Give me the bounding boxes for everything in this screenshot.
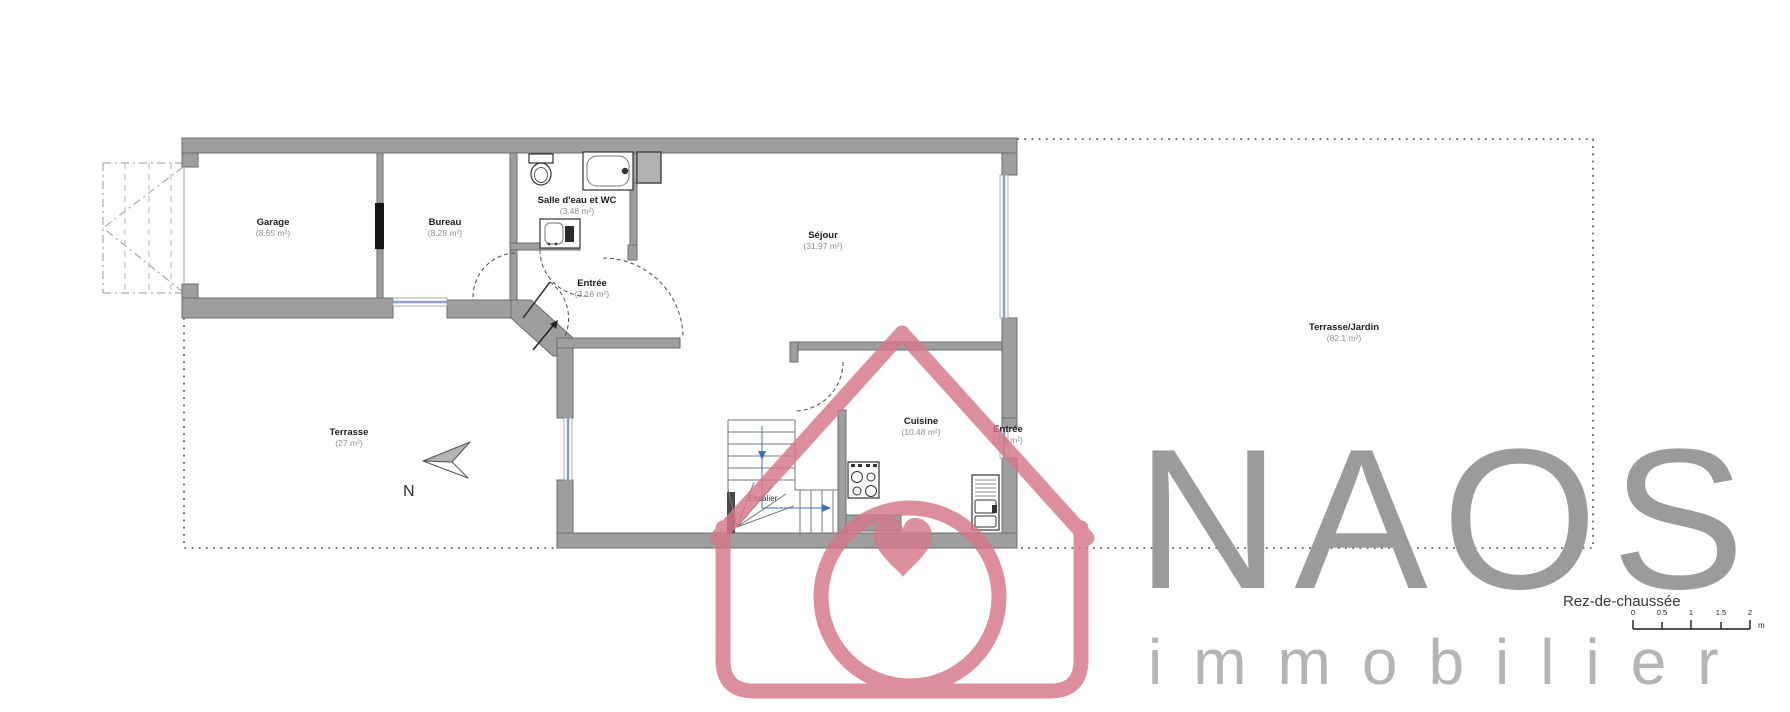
scale-tick-2: 2 bbox=[1748, 608, 1752, 617]
bathtub-icon bbox=[583, 152, 633, 190]
room-label-bureau: Bureau (8.28 m²) bbox=[428, 217, 462, 239]
brand-watermark-text: NAOS bbox=[1136, 420, 1759, 620]
room-label-sejour: Séjour (31.97 m²) bbox=[803, 230, 842, 252]
sink-icon bbox=[972, 475, 999, 530]
north-arrow-icon bbox=[423, 442, 470, 478]
north-label: N bbox=[403, 483, 415, 501]
kitchen-door-arc bbox=[794, 362, 843, 411]
room-label-escalier: Escalier bbox=[749, 493, 777, 504]
stairs bbox=[728, 420, 838, 533]
driveway-markings bbox=[103, 163, 183, 293]
stove-icon bbox=[848, 462, 879, 498]
room-label-terrasse: Terrasse (27 m²) bbox=[330, 427, 369, 449]
scale-unit: m bbox=[1758, 621, 1765, 630]
room-label-salle-eau-wc: Salle d'eau et WC (3.48 m²) bbox=[538, 195, 617, 217]
scale-tick-15: 1.5 bbox=[1716, 608, 1726, 617]
sejour-door-arc bbox=[603, 258, 683, 338]
washbasin-icon bbox=[540, 219, 580, 248]
room-label-entree-rear: Entrée (3.4 m²) bbox=[993, 424, 1023, 446]
toilet-icon bbox=[529, 154, 553, 185]
room-label-entree-hall: Entrée (3.16 m²) bbox=[575, 278, 609, 300]
utility-shaft-block bbox=[637, 152, 661, 183]
room-label-cuisine: Cuisine (10.48 m²) bbox=[901, 416, 940, 438]
room-label-terrasse-jardin: Terrasse/Jardin (82.1 m²) bbox=[1309, 322, 1379, 344]
brand-watermark-subtitle: immobilier bbox=[1148, 630, 1750, 694]
floor-plan-page: Garage (8.65 m²) Bureau (8.28 m²) Salle … bbox=[0, 0, 1790, 712]
scale-tick-1: 1 bbox=[1689, 608, 1693, 617]
scale-tick-0: 0 bbox=[1631, 608, 1635, 617]
room-label-garage: Garage (8.65 m²) bbox=[256, 217, 290, 239]
garage-bureau-door bbox=[375, 203, 384, 249]
stair-arrow-right bbox=[822, 504, 831, 512]
interior-walls bbox=[377, 153, 1002, 533]
scale-tick-05: 0.5 bbox=[1657, 608, 1667, 617]
